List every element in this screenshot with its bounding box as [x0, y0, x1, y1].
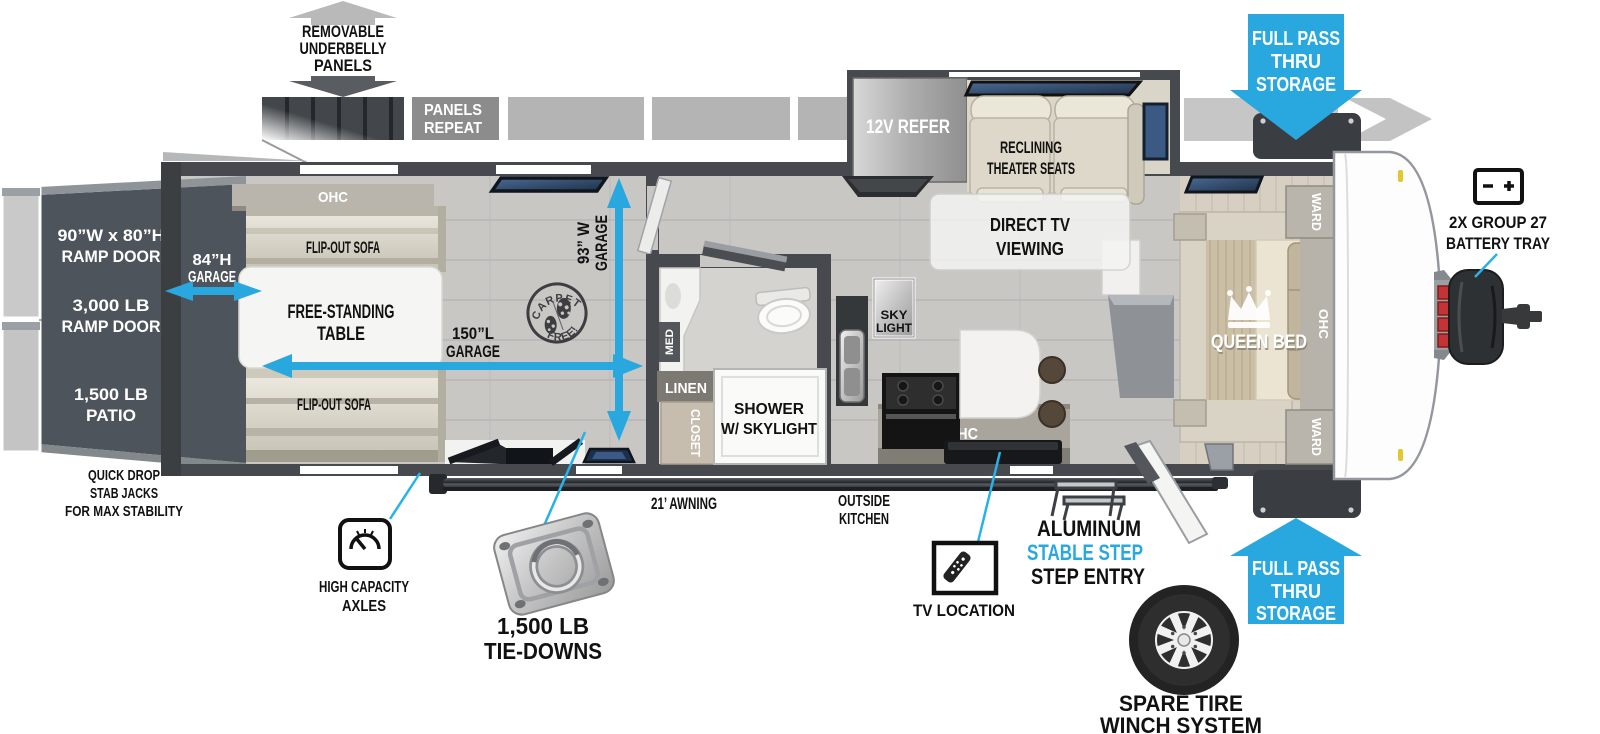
svg-text:PATIO: PATIO [86, 406, 136, 425]
svg-text:21’ AWNING: 21’ AWNING [651, 494, 717, 513]
svg-text:150”L: 150”L [452, 324, 494, 343]
svg-text:93” W: 93” W [574, 221, 593, 264]
svg-text:STEP ENTRY: STEP ENTRY [1031, 564, 1145, 589]
svg-text:STAB JACKS: STAB JACKS [90, 485, 158, 502]
svg-text:WARD: WARD [1309, 418, 1324, 456]
svg-text:THRU: THRU [1271, 51, 1321, 73]
svg-text:TV LOCATION: TV LOCATION [913, 601, 1015, 620]
svg-text:GARAGE: GARAGE [188, 269, 236, 286]
svg-text:OUTSIDE: OUTSIDE [838, 493, 890, 510]
svg-text:WARD: WARD [1309, 193, 1324, 231]
svg-text:3,000 LB: 3,000 LB [73, 296, 150, 315]
svg-text:TABLE: TABLE [317, 324, 365, 345]
svg-text:GARAGE: GARAGE [446, 342, 500, 361]
svg-text:CLOSET: CLOSET [688, 409, 703, 457]
svg-text:FULL PASS: FULL PASS [1252, 558, 1340, 580]
svg-text:AXLES: AXLES [342, 598, 386, 615]
svg-text:RAMP DOOR: RAMP DOOR [62, 317, 161, 336]
svg-text:W/ SKYLIGHT: W/ SKYLIGHT [721, 421, 817, 438]
svg-text:RECLINING: RECLINING [1000, 138, 1062, 157]
svg-text:STORAGE: STORAGE [1256, 603, 1336, 625]
svg-text:90”W x 80”H: 90”W x 80”H [58, 226, 165, 245]
svg-text:OHC: OHC [1316, 309, 1331, 340]
svg-text:FLIP-OUT SOFA: FLIP-OUT SOFA [306, 238, 380, 257]
svg-text:THRU: THRU [1271, 581, 1321, 603]
svg-text:SKY: SKY [881, 308, 908, 322]
svg-text:TIE-DOWNS: TIE-DOWNS [484, 638, 602, 664]
svg-text:SHOWER: SHOWER [734, 401, 804, 418]
svg-text:FREE-STANDING: FREE-STANDING [288, 302, 395, 323]
svg-text:12V REFER: 12V REFER [866, 117, 950, 138]
svg-text:REPEAT: REPEAT [424, 120, 482, 137]
svg-text:ALUMINUM: ALUMINUM [1037, 516, 1141, 541]
svg-text:VIEWING: VIEWING [996, 239, 1064, 259]
svg-text:QUICK DROP: QUICK DROP [88, 467, 160, 484]
svg-text:BATTERY TRAY: BATTERY TRAY [1446, 234, 1551, 253]
svg-text:FOR MAX STABILITY: FOR MAX STABILITY [65, 503, 183, 520]
svg-text:WINCH SYSTEM: WINCH SYSTEM [1100, 713, 1262, 734]
svg-text:KITCHEN: KITCHEN [839, 511, 889, 528]
svg-text:84”H: 84”H [193, 252, 232, 269]
svg-text:OHC: OHC [318, 189, 348, 206]
svg-text:STORAGE: STORAGE [1256, 74, 1336, 96]
svg-text:RAMP DOOR: RAMP DOOR [62, 247, 161, 266]
svg-text:2X GROUP 27: 2X GROUP 27 [1449, 213, 1547, 232]
svg-text:QUEEN BED: QUEEN BED [1211, 332, 1307, 353]
svg-text:1,500 LB: 1,500 LB [497, 613, 589, 639]
svg-text:FULL PASS: FULL PASS [1252, 28, 1340, 50]
svg-text:GARAGE: GARAGE [592, 215, 611, 271]
svg-text:STABLE STEP: STABLE STEP [1027, 540, 1143, 565]
svg-text:LIGHT: LIGHT [876, 321, 913, 335]
svg-text:MED: MED [664, 329, 676, 355]
svg-text:FLIP-OUT SOFA: FLIP-OUT SOFA [297, 395, 371, 414]
svg-text:DIRECT TV: DIRECT TV [990, 215, 1070, 235]
svg-text:1,500 LB: 1,500 LB [74, 385, 148, 404]
svg-text:THEATER SEATS: THEATER SEATS [987, 159, 1075, 178]
svg-text:LINEN: LINEN [665, 380, 707, 397]
svg-text:PANELS: PANELS [314, 56, 372, 75]
svg-text:HIGH CAPACITY: HIGH CAPACITY [319, 579, 409, 596]
svg-text:PANELS: PANELS [424, 102, 482, 119]
